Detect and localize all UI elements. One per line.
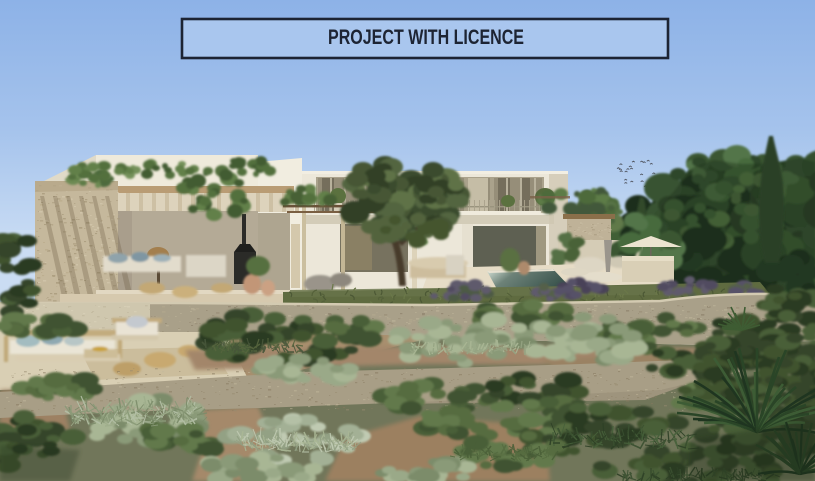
svg-text:PROJECT WITH LICENCE: PROJECT WITH LICENCE: [328, 25, 524, 49]
